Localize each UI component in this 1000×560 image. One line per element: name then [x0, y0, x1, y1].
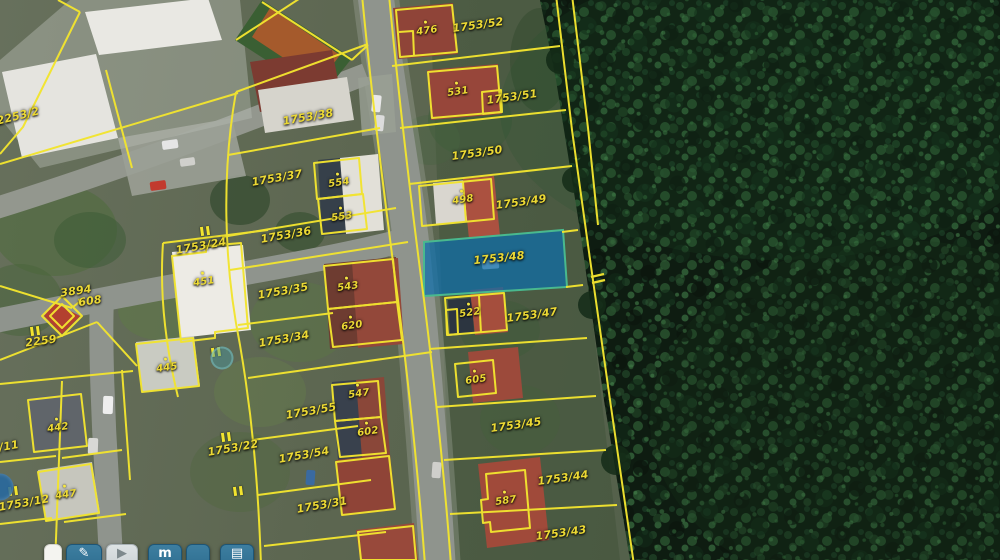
measure-icon: m [158, 547, 172, 560]
selected-parcel-highlight[interactable] [424, 230, 567, 296]
toolbar-button-tool[interactable] [186, 544, 210, 560]
toolbar-button-partial[interactable] [44, 544, 62, 560]
toolbar-button-layers[interactable]: ▤ [220, 544, 254, 560]
edit-icon: ✎ [79, 547, 90, 560]
next-icon: ▶ [117, 547, 127, 560]
toolbar-button-edit[interactable]: ✎ [66, 544, 102, 560]
layers-icon: ▤ [231, 547, 243, 560]
highlight-layer [424, 230, 567, 296]
map-viewport[interactable]: 2253/21753/521753/511753/381753/501753/3… [0, 0, 1000, 560]
toolbar-button-measure[interactable]: m [148, 544, 182, 560]
toolbar-button-next[interactable]: ▶ [106, 544, 138, 560]
aerial-canvas [0, 0, 1000, 560]
